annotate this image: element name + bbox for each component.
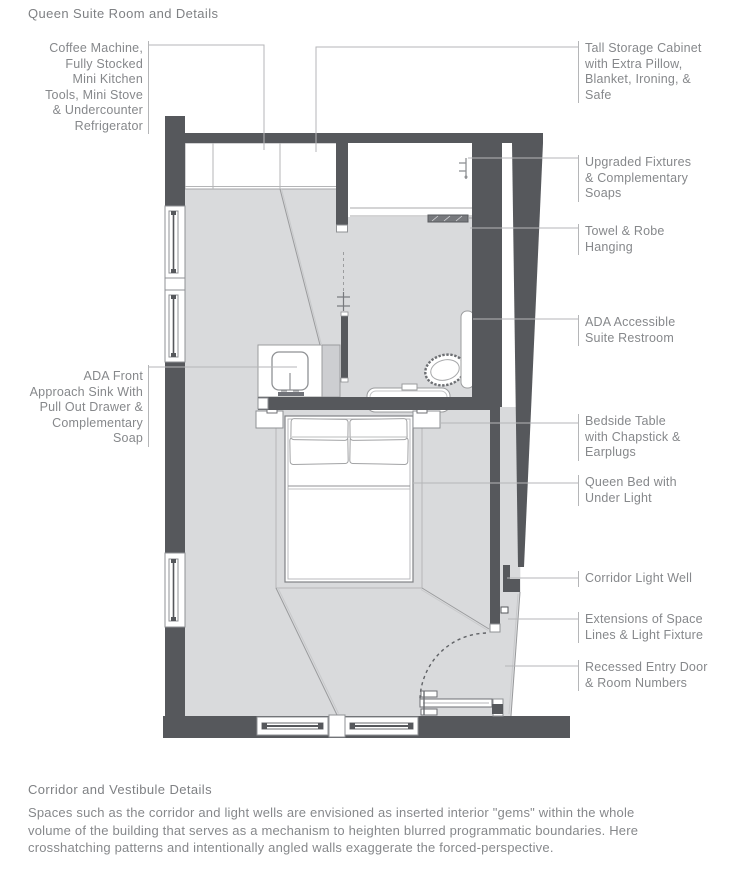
label-upgraded-fixtures: Upgraded Fixtures & Complementary Soaps (578, 155, 748, 202)
label-ada-sink: ADA Front Approach Sink With Pull Out Dr… (24, 365, 149, 447)
label-towel-robe-hanging: Towel & Robe Hanging (578, 224, 748, 255)
bottom-windows (257, 715, 418, 737)
label-coffee-machine: Coffee Machine, Fully Stocked Mini Kitch… (24, 41, 149, 134)
label-recessed-entry-door: Recessed Entry Door & Room Numbers (578, 660, 748, 691)
label-corridor-light-well: Corridor Light Well (578, 571, 748, 587)
queen-bed (285, 416, 413, 582)
room-number-plate (501, 607, 508, 613)
ada-sink (258, 345, 340, 397)
label-ada-restroom: ADA Accessible Suite Restroom (578, 315, 748, 346)
label-tall-storage-cabinet: Tall Storage Cabinet with Extra Pillow, … (578, 41, 748, 103)
label-queen-bed: Queen Bed with Under Light (578, 475, 748, 506)
mini-kitchen-counter (185, 143, 338, 189)
footer-body: Spaces such as the corridor and light we… (28, 804, 728, 857)
page-title: Queen Suite Room and Details (28, 6, 218, 21)
label-bedside-table: Bedside Table with Chapstick & Earplugs (578, 414, 748, 461)
towel-robe-bar (428, 215, 474, 222)
label-extensions-of-space: Extensions of Space Lines & Light Fixtur… (578, 612, 748, 643)
floor-plan-sheet: { "title": "Queen Suite Room and Details… (0, 0, 749, 871)
footer-heading: Corridor and Vestibule Details (28, 782, 212, 797)
